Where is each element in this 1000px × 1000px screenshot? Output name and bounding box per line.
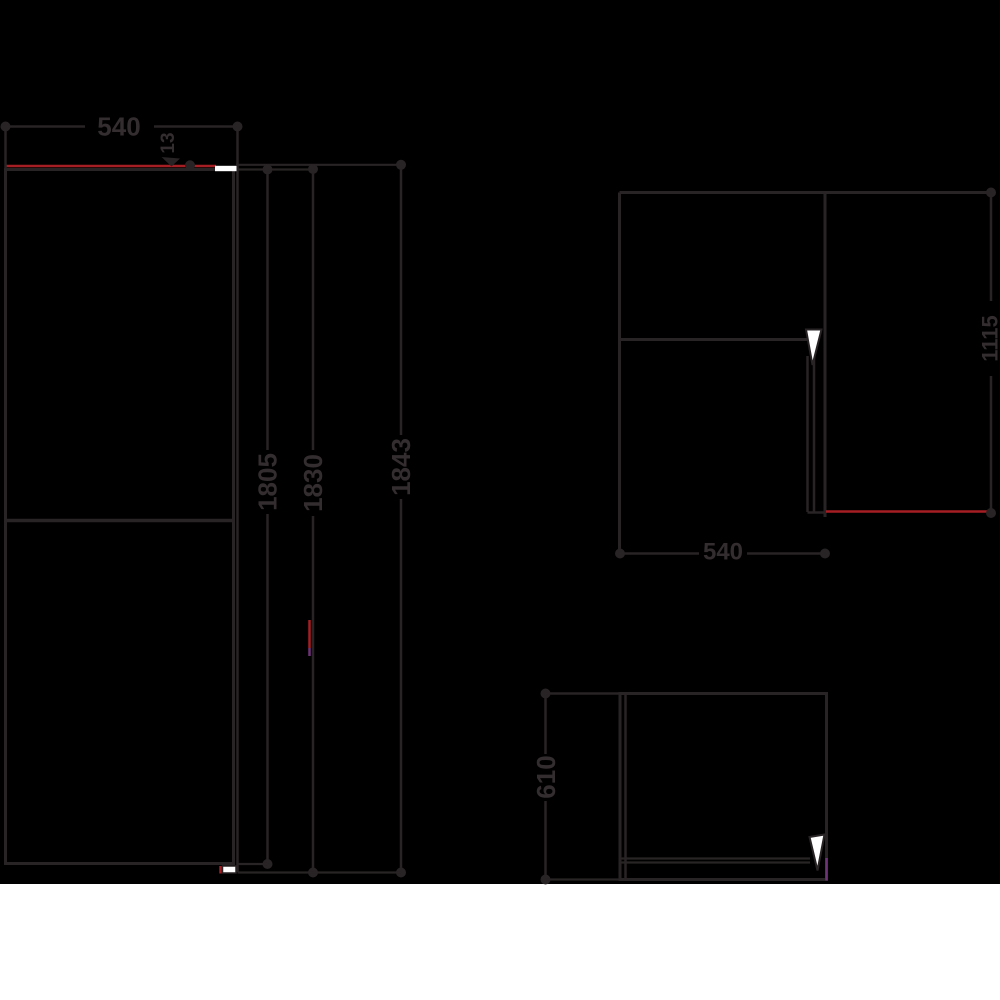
foot-white-detail — [223, 866, 237, 873]
hinge-offset-dot — [185, 160, 195, 170]
width-dim-dot-left — [1, 122, 11, 132]
plan-width-dot-right — [820, 549, 830, 559]
dim-label-plan-width: 540 — [703, 539, 743, 566]
dim-label-height-1805: 1805 — [253, 453, 283, 511]
width-dim-dot-right — [233, 122, 243, 132]
hinge-cover-white-bar — [215, 166, 237, 171]
depth-1115-dot-bottom — [986, 508, 996, 518]
height-1830-dot-top — [308, 164, 318, 174]
dim-label-front-width: 540 — [97, 112, 140, 142]
diagram-canvas: 540 13 1805 1830 1843 1115 540 610 — [0, 0, 1000, 1000]
plan-width-dot-left — [615, 549, 625, 559]
bottom-white-band — [0, 884, 1000, 1000]
dimension-diagram: 540 13 1805 1830 1843 1115 540 610 — [0, 0, 1000, 1000]
dim-label-hinge-offset: 13 — [158, 132, 179, 153]
dim-label-height-1830: 1830 — [298, 454, 328, 512]
dim-label-height-1843: 1843 — [386, 438, 416, 496]
depth-1115-dot-top — [986, 188, 996, 198]
dim-label-depth-610: 610 — [531, 755, 561, 798]
background — [0, 0, 1000, 1000]
height-1805-dot-top — [263, 165, 273, 175]
height-1843-dot-top — [396, 160, 406, 170]
dim-label-depth-open-1115: 1115 — [978, 315, 1000, 362]
